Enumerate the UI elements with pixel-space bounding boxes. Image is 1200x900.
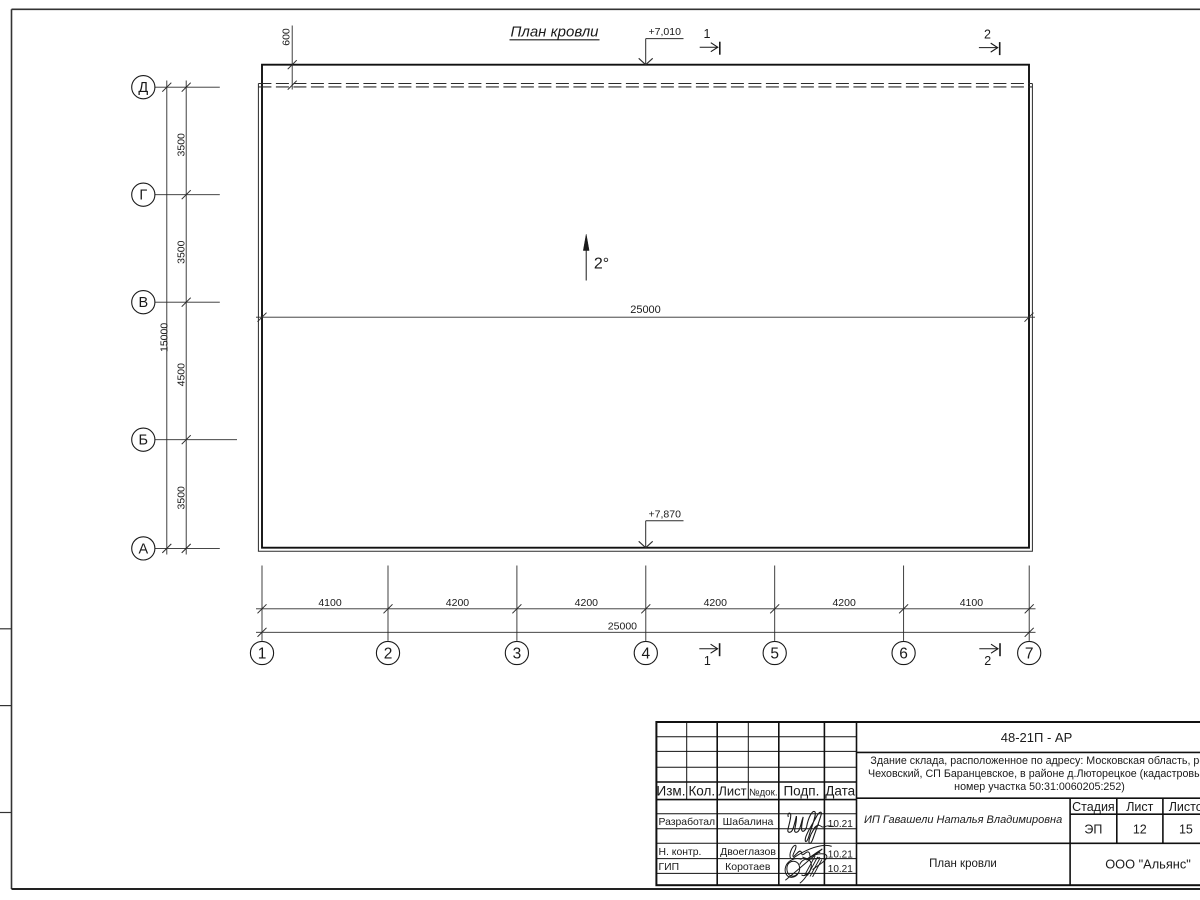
svg-text:2: 2	[984, 654, 991, 668]
svg-text:10.21: 10.21	[828, 850, 853, 861]
svg-text:15: 15	[1179, 823, 1193, 837]
svg-text:5: 5	[770, 645, 779, 662]
svg-text:Чеховский, СП Баранцевское, в: Чеховский, СП Баранцевское, в районе д.Л…	[868, 768, 1200, 780]
svg-text:7: 7	[1025, 645, 1034, 662]
svg-text:ЭП: ЭП	[1084, 823, 1102, 837]
svg-text:4200: 4200	[832, 597, 856, 609]
svg-text:2: 2	[384, 645, 393, 662]
svg-text:1: 1	[704, 27, 711, 41]
svg-text:номер участка 50:31:0060205:25: номер участка 50:31:0060205:252)	[954, 781, 1125, 793]
svg-text:ИП Гавашели Наталья Владимиров: ИП Гавашели Наталья Владимировна	[864, 814, 1062, 826]
svg-text:4200: 4200	[446, 597, 470, 609]
svg-text:Кол.: Кол.	[688, 783, 715, 798]
svg-text:+7,870: +7,870	[649, 508, 682, 520]
svg-text:2: 2	[984, 27, 991, 41]
svg-text:Н. контр.: Н. контр.	[659, 847, 702, 858]
svg-text:Здание склада, расположенное п: Здание склада, расположенное по адресу: …	[870, 755, 1200, 767]
svg-text:+7,010: +7,010	[649, 26, 682, 38]
svg-text:Г: Г	[139, 188, 147, 204]
svg-text:2°: 2°	[594, 256, 609, 273]
svg-text:25000: 25000	[608, 620, 637, 632]
svg-text:Разработал: Разработал	[659, 816, 716, 828]
svg-text:600: 600	[281, 28, 293, 46]
svg-text:ГИП: ГИП	[659, 862, 680, 873]
svg-text:Двоеглазов: Двоеглазов	[720, 846, 776, 858]
svg-text:3500: 3500	[175, 133, 187, 157]
svg-text:15000: 15000	[159, 323, 171, 352]
svg-text:3: 3	[513, 645, 522, 662]
svg-text:48-21П - АР: 48-21П - АР	[1001, 730, 1073, 745]
svg-text:Коротаев: Коротаев	[725, 861, 771, 873]
svg-text:Изм.: Изм.	[657, 783, 686, 798]
svg-text:Дата: Дата	[825, 783, 855, 798]
svg-text:Б: Б	[139, 433, 149, 449]
svg-text:Шабалина: Шабалина	[723, 816, 774, 828]
svg-text:План кровли: План кровли	[511, 24, 600, 41]
svg-text:Стадия: Стадия	[1072, 800, 1115, 814]
svg-text:3500: 3500	[175, 240, 187, 264]
svg-text:25000: 25000	[630, 304, 661, 316]
svg-text:4: 4	[641, 645, 650, 662]
svg-text:10.21: 10.21	[828, 819, 853, 830]
svg-text:А: А	[138, 541, 148, 557]
svg-text:1: 1	[258, 645, 267, 662]
svg-text:Подп.: Подп.	[783, 783, 819, 798]
svg-text:4100: 4100	[318, 597, 342, 609]
svg-text:Лист: Лист	[1126, 800, 1153, 814]
svg-text:В: В	[138, 295, 148, 311]
svg-text:6: 6	[899, 645, 908, 662]
svg-text:12: 12	[1133, 823, 1147, 837]
svg-text:3500: 3500	[175, 486, 187, 510]
svg-text:Листов: Листов	[1169, 800, 1200, 814]
svg-text:Лист: Лист	[718, 783, 746, 798]
svg-text:4200: 4200	[575, 597, 599, 609]
svg-text:10.21: 10.21	[828, 864, 853, 875]
svg-text:1: 1	[704, 654, 711, 668]
svg-text:Д: Д	[138, 80, 148, 96]
svg-text:4500: 4500	[175, 363, 187, 387]
svg-text:№док.: №док.	[749, 788, 778, 799]
svg-text:4100: 4100	[960, 597, 984, 609]
svg-text:4200: 4200	[704, 597, 728, 609]
svg-text:План кровли: План кровли	[929, 858, 997, 870]
svg-text:ООО "Альянс": ООО "Альянс"	[1105, 856, 1191, 871]
